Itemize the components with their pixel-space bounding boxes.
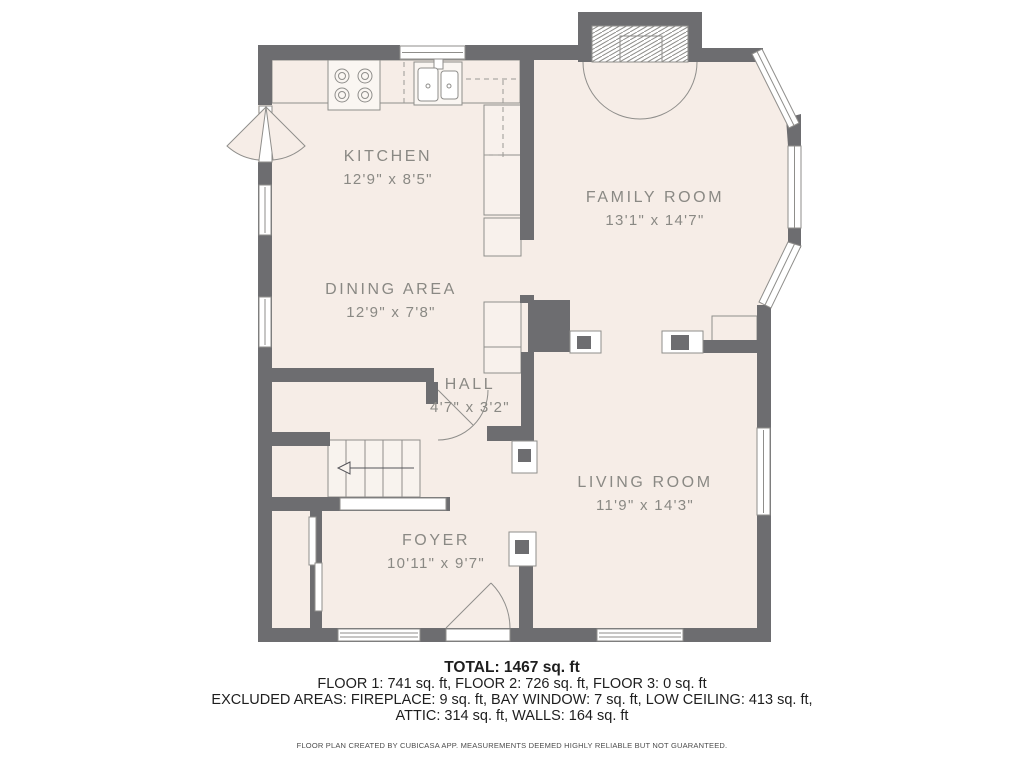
stair-cased-opening [340,498,446,510]
area-summary: TOTAL: 1467 sq. ft FLOOR 1: 741 sq. ft, … [0,660,1024,754]
kitchen-sink [414,57,462,105]
living-room-dimensions: 11'9" x 14'3" [577,497,712,514]
hall-name: HALL [430,376,510,394]
post-fixture-foyer-lower [509,532,536,566]
disclaimer-text: FLOOR PLAN CREATED BY CUBICASA APP. MEAS… [0,738,1024,754]
bay-window-segment-2 [788,146,801,228]
excluded-areas-text-line1: EXCLUDED AREAS: FIREPLACE: 9 sq. ft, BAY… [0,692,1024,708]
living-room-front-window [597,629,683,641]
post-fixture-foyer-upper [512,441,537,473]
staircase [328,440,420,497]
room-label-foyer: FOYER 10'11" x 9'7" [387,532,485,572]
dining-shelves [484,302,521,373]
excluded-areas-text-line2: ATTIC: 314 sq. ft, WALLS: 164 sq. ft [0,708,1024,724]
floor-plan-drawing [0,0,1024,768]
kitchen-dimensions: 12'9" x 8'5" [343,171,433,188]
room-label-living-room: LIVING ROOM 11'9" x 14'3" [577,474,712,514]
room-label-family-room: FAMILY ROOM 13'1" x 14'7" [586,189,724,229]
hall-dimensions: 4'7" x 3'2" [430,399,510,416]
fireplace [578,12,702,62]
dining-area-name: DINING AREA [325,281,457,299]
chimney-block [528,300,570,352]
total-area-text: TOTAL: 1467 sq. ft [0,660,1024,676]
stove [328,60,380,110]
kitchen-window [400,46,465,59]
living-room-name: LIVING ROOM [577,474,712,492]
room-label-kitchen: KITCHEN 12'9" x 8'5" [343,148,433,188]
left-wall-window-upper [259,185,271,235]
living-room-side-window [757,428,770,515]
family-room-dimensions: 13'1" x 14'7" [586,212,724,229]
kitchen-name: KITCHEN [343,148,433,166]
foyer-name: FOYER [387,532,485,550]
dining-area-dimensions: 12'9" x 7'8" [325,304,457,321]
foyer-front-window [338,629,420,641]
family-room-name: FAMILY ROOM [586,189,724,207]
foyer-dimensions: 10'11" x 9'7" [387,555,485,572]
floor-plan-page: KITCHEN 12'9" x 8'5" FAMILY ROOM 13'1" x… [0,0,1024,768]
room-label-dining-area: DINING AREA 12'9" x 7'8" [325,281,457,321]
post-fixture-family-divider [662,331,703,353]
post-fixture-chimney-right [570,331,601,353]
floor-areas-text: FLOOR 1: 741 sq. ft, FLOOR 2: 726 sq. ft… [0,676,1024,692]
left-wall-window-lower [259,297,271,347]
room-label-hall: HALL 4'7" x 3'2" [430,376,510,416]
